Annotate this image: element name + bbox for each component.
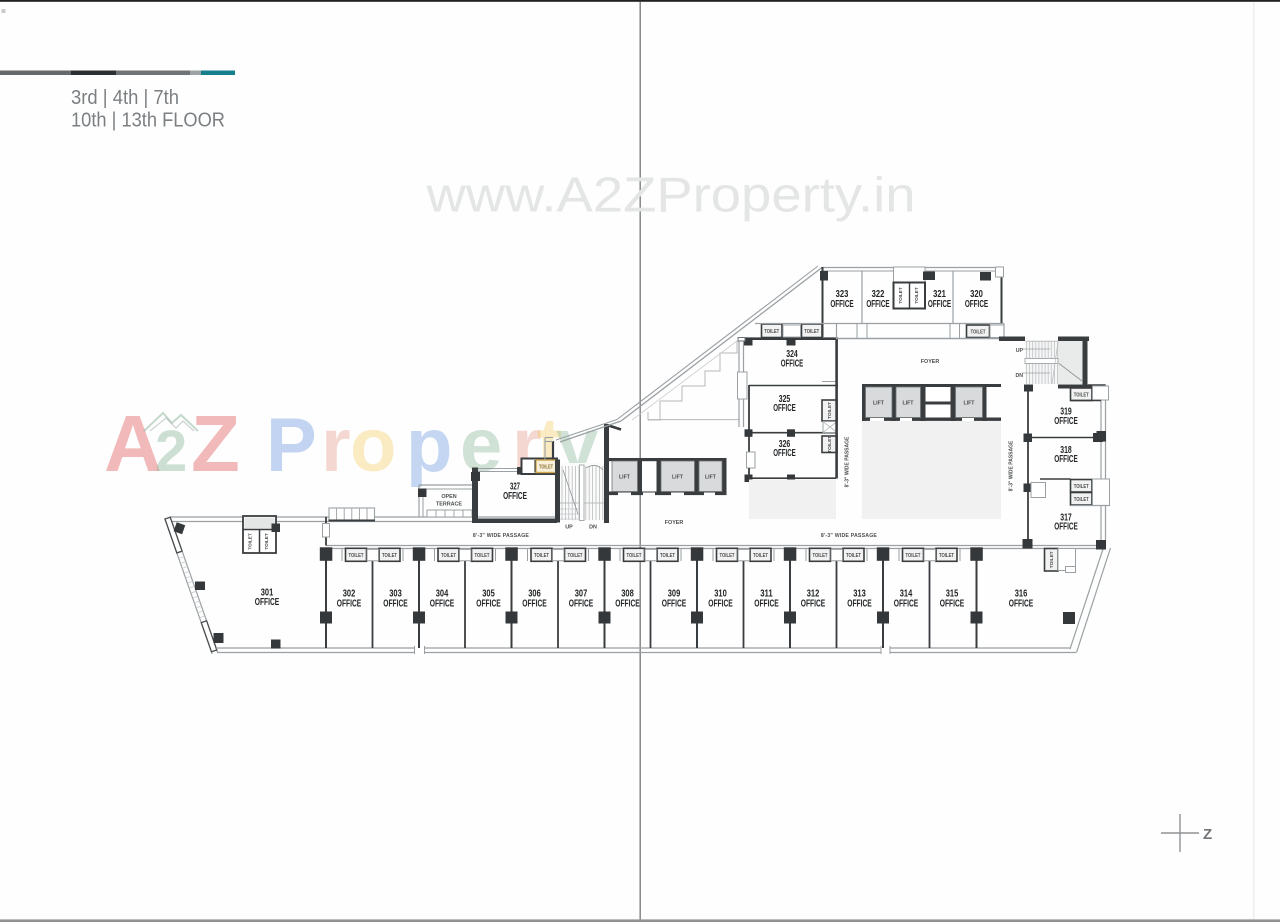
svg-text:DN: DN	[1016, 373, 1024, 379]
svg-text:TOILET: TOILET	[898, 287, 903, 303]
svg-text:DN: DN	[589, 525, 597, 531]
svg-text:OFFICE: OFFICE	[255, 597, 280, 608]
svg-text:3rd | 4th | 7th: 3rd | 4th | 7th	[71, 86, 179, 109]
svg-text:TOILET: TOILET	[1074, 497, 1090, 503]
svg-text:TOILET: TOILET	[1049, 551, 1055, 568]
svg-text:www.A2ZProperty.in: www.A2ZProperty.in	[425, 169, 915, 223]
svg-text:TOILET: TOILET	[264, 533, 269, 549]
svg-text:FOYER: FOYER	[665, 520, 684, 526]
svg-text:TOILET: TOILET	[349, 553, 365, 559]
svg-text:TOILET: TOILET	[939, 553, 955, 559]
svg-text:TOILET: TOILET	[534, 553, 550, 559]
svg-text:OFFICE: OFFICE	[1054, 416, 1078, 427]
svg-text:TOILET: TOILET	[827, 436, 833, 453]
svg-text:OPEN: OPEN	[441, 494, 456, 500]
svg-text:OFFICE: OFFICE	[801, 599, 826, 610]
svg-text:TOILET: TOILET	[804, 329, 820, 335]
svg-text:TOILET: TOILET	[1074, 484, 1090, 490]
svg-text:OFFICE: OFFICE	[662, 599, 687, 610]
svg-text:LIFT: LIFT	[672, 475, 684, 481]
svg-text:TOILET: TOILET	[753, 553, 769, 559]
svg-text:OFFICE: OFFICE	[615, 599, 640, 610]
svg-text:OFFICE: OFFICE	[847, 599, 872, 610]
svg-text:TOILET: TOILET	[813, 553, 829, 559]
svg-text:TOILET: TOILET	[475, 553, 491, 559]
svg-text:LIFT: LIFT	[619, 475, 631, 481]
svg-text:OFFICE: OFFICE	[430, 599, 455, 610]
svg-text:OFFICE: OFFICE	[781, 359, 804, 370]
svg-text:TOILET: TOILET	[971, 329, 987, 335]
svg-text:A: A	[104, 399, 162, 488]
svg-text:FOYER: FOYER	[921, 359, 940, 365]
svg-text:8'-3" WIDE PASSAGE: 8'-3" WIDE PASSAGE	[473, 533, 530, 539]
svg-text:TOILET: TOILET	[539, 465, 553, 471]
svg-text:OFFICE: OFFICE	[894, 599, 919, 610]
svg-text:2: 2	[155, 419, 187, 484]
svg-text:OFFICE: OFFICE	[337, 599, 362, 610]
svg-text:OFFICE: OFFICE	[522, 599, 547, 610]
svg-text:P: P	[266, 403, 317, 488]
svg-text:OFFICE: OFFICE	[1054, 522, 1078, 533]
svg-text:Z: Z	[1203, 826, 1212, 843]
svg-text:Z: Z	[191, 399, 240, 488]
svg-text:TOILET: TOILET	[627, 553, 643, 559]
svg-text:TOILET: TOILET	[906, 553, 922, 559]
svg-text:TOILET: TOILET	[846, 553, 862, 559]
svg-text:TOILET: TOILET	[764, 329, 780, 335]
svg-text:TOILET: TOILET	[248, 533, 253, 549]
svg-text:OFFICE: OFFICE	[476, 599, 501, 610]
svg-text:OFFICE: OFFICE	[503, 491, 527, 502]
svg-text:LIFT: LIFT	[873, 401, 885, 407]
svg-text:LIFT: LIFT	[705, 475, 717, 481]
svg-text:o: o	[350, 403, 396, 488]
svg-text:TOILET: TOILET	[914, 287, 919, 303]
svg-text:8'-3" WIDE PASSAGE: 8'-3" WIDE PASSAGE	[821, 533, 878, 539]
svg-text:TOILET: TOILET	[441, 553, 457, 559]
svg-text:OFFICE: OFFICE	[1054, 454, 1078, 465]
svg-text:p: p	[406, 403, 452, 488]
svg-text:OFFICE: OFFICE	[1009, 599, 1034, 610]
svg-text:UP: UP	[1016, 348, 1024, 354]
svg-text:TOILET: TOILET	[660, 553, 676, 559]
svg-text:OFFICE: OFFICE	[940, 599, 965, 610]
svg-text:OFFICE: OFFICE	[866, 299, 890, 310]
svg-text:OFFICE: OFFICE	[754, 599, 779, 610]
svg-text:OFFICE: OFFICE	[773, 403, 796, 414]
svg-text:e: e	[460, 403, 502, 488]
svg-text:10th | 13th FLOOR: 10th | 13th FLOOR	[71, 109, 225, 132]
svg-text:OFFICE: OFFICE	[773, 448, 796, 459]
svg-text:8'-3" WIDE PASSAGE: 8'-3" WIDE PASSAGE	[1009, 440, 1015, 491]
svg-text:OFFICE: OFFICE	[383, 599, 408, 610]
svg-text:TOILET: TOILET	[568, 553, 584, 559]
svg-text:OFFICE: OFFICE	[928, 299, 952, 310]
svg-text:TOILET: TOILET	[382, 553, 398, 559]
svg-text:TOILET: TOILET	[827, 402, 833, 419]
svg-text:r: r	[321, 403, 351, 488]
svg-text:TOILET: TOILET	[1074, 392, 1090, 398]
svg-text:OFFICE: OFFICE	[569, 599, 594, 610]
svg-text:TOILET: TOILET	[720, 553, 736, 559]
svg-text:LIFT: LIFT	[903, 401, 915, 407]
svg-text:LIFT: LIFT	[964, 401, 976, 407]
svg-text:UP: UP	[565, 525, 573, 531]
svg-text:TERRACE: TERRACE	[436, 502, 462, 508]
svg-text:8'-3" WIDE PASSAGE: 8'-3" WIDE PASSAGE	[845, 436, 851, 487]
svg-text:OFFICE: OFFICE	[708, 599, 733, 610]
svg-text:OFFICE: OFFICE	[830, 299, 854, 310]
svg-text:OFFICE: OFFICE	[965, 299, 989, 310]
